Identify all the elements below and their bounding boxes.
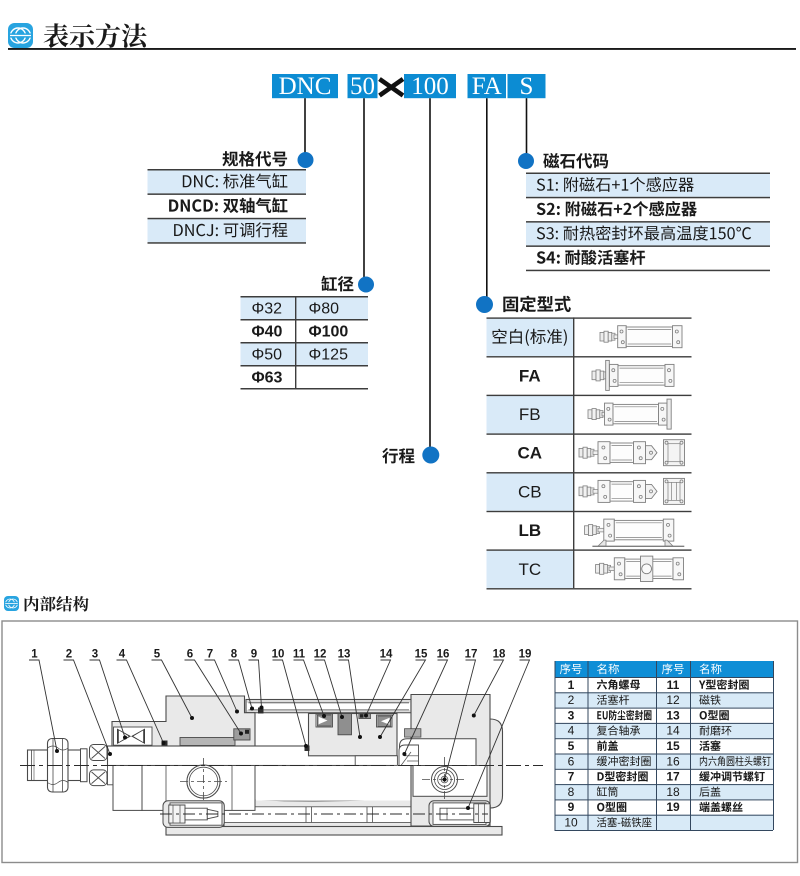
svg-text:CB: CB — [518, 482, 542, 501]
svg-text:CA: CA — [518, 444, 543, 463]
svg-text:6: 6 — [187, 649, 193, 661]
svg-text:13: 13 — [666, 708, 680, 722]
svg-text:5: 5 — [568, 739, 575, 753]
svg-text:1: 1 — [568, 678, 575, 692]
svg-text:TC: TC — [518, 560, 541, 579]
svg-text:11: 11 — [293, 649, 306, 661]
svg-text:10: 10 — [272, 649, 285, 661]
svg-text:Φ40: Φ40 — [252, 324, 283, 341]
svg-text:Φ100: Φ100 — [309, 324, 349, 341]
svg-text:2: 2 — [568, 693, 575, 707]
svg-text:LB: LB — [518, 521, 541, 540]
svg-text:7: 7 — [568, 770, 575, 784]
svg-text:10: 10 — [564, 816, 578, 830]
svg-text:13: 13 — [338, 649, 351, 661]
svg-text:FA: FA — [472, 73, 502, 100]
svg-text:18: 18 — [493, 649, 506, 661]
svg-text:DNC: DNC — [279, 73, 332, 100]
svg-text:12: 12 — [666, 693, 680, 707]
svg-text:14: 14 — [380, 649, 393, 661]
svg-text:3: 3 — [568, 708, 575, 722]
svg-text:15: 15 — [666, 739, 680, 753]
svg-text:FB: FB — [519, 405, 541, 424]
svg-text:FA: FA — [519, 366, 541, 385]
svg-text:15: 15 — [415, 649, 428, 661]
svg-text:7: 7 — [207, 649, 213, 661]
svg-text:Φ50: Φ50 — [252, 347, 283, 364]
svg-text:Φ32: Φ32 — [252, 301, 283, 318]
svg-text:18: 18 — [666, 785, 680, 799]
svg-text:6: 6 — [568, 754, 575, 768]
svg-text:16: 16 — [666, 754, 680, 768]
svg-text:17: 17 — [666, 770, 680, 784]
svg-text:9: 9 — [568, 800, 575, 814]
svg-text:14: 14 — [666, 724, 680, 738]
svg-text:2: 2 — [66, 649, 72, 661]
svg-text:12: 12 — [314, 649, 327, 661]
svg-text:8: 8 — [568, 785, 575, 799]
svg-text:100: 100 — [411, 73, 449, 100]
svg-text:3: 3 — [92, 649, 98, 661]
svg-text:11: 11 — [667, 678, 680, 692]
svg-text:4: 4 — [119, 649, 126, 661]
svg-text:16: 16 — [437, 649, 450, 661]
svg-text:Φ125: Φ125 — [309, 347, 349, 364]
svg-text:1: 1 — [31, 649, 38, 661]
svg-text:Φ63: Φ63 — [252, 370, 283, 387]
svg-text:19: 19 — [519, 649, 532, 661]
svg-text:17: 17 — [465, 649, 478, 661]
svg-text:4: 4 — [568, 724, 575, 738]
svg-text:S: S — [520, 73, 534, 100]
svg-text:50: 50 — [350, 73, 375, 100]
svg-text:8: 8 — [231, 649, 238, 661]
svg-text:9: 9 — [251, 649, 257, 661]
svg-text:5: 5 — [154, 649, 161, 661]
svg-text:Φ80: Φ80 — [309, 301, 340, 318]
svg-text:19: 19 — [666, 800, 680, 814]
